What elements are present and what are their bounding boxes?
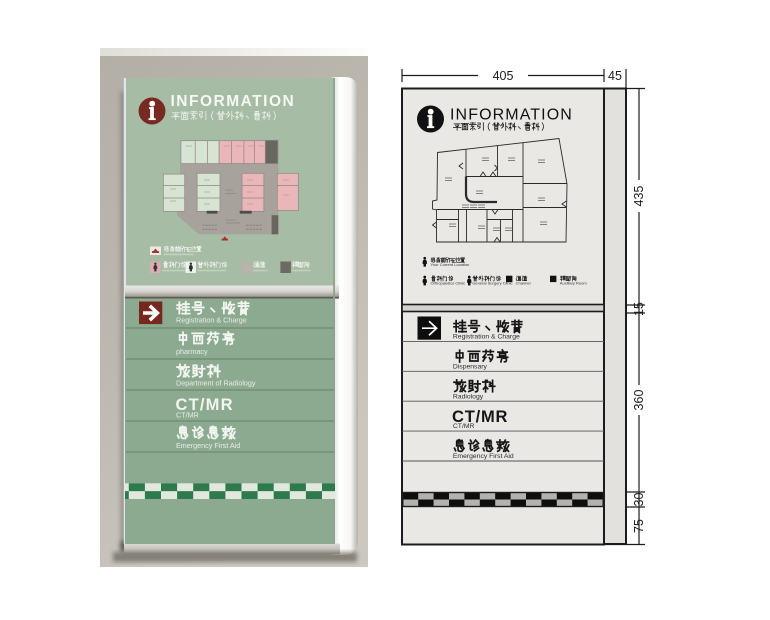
svg-text:435: 435	[632, 186, 646, 207]
svg-text:INFORMATION: INFORMATION	[450, 107, 573, 124]
svg-text:75: 75	[632, 519, 646, 533]
svg-text:CT/MR: CT/MR	[453, 423, 475, 430]
svg-text:Emergency First Aid: Emergency First Aid	[453, 453, 514, 460]
svg-text:Orthopaedics Clinic: Orthopaedics Clinic	[431, 281, 466, 286]
svg-text:Registration & Charge: Registration & Charge	[453, 334, 520, 341]
svg-text:Department of Radiology: Department of Radiology	[176, 379, 256, 388]
svg-text:Emergency First Aid: Emergency First Aid	[176, 441, 240, 450]
svg-text:Auxiliary Room: Auxiliary Room	[560, 281, 588, 286]
svg-text:Radiology: Radiology	[453, 393, 484, 400]
svg-text:CT/MR: CT/MR	[176, 411, 199, 420]
svg-text:405: 405	[493, 69, 514, 83]
svg-text:INFORMATION: INFORMATION	[171, 93, 296, 110]
svg-text:30: 30	[632, 493, 646, 507]
svg-text:Channel: Channel	[516, 281, 531, 286]
svg-text:Dispensary: Dispensary	[453, 363, 488, 370]
svg-text:Registration & Charge: Registration & Charge	[176, 315, 247, 324]
svg-text:45: 45	[608, 69, 622, 83]
svg-text:360: 360	[632, 390, 646, 411]
svg-text:pharmacy: pharmacy	[176, 347, 208, 356]
svg-text:15: 15	[632, 302, 646, 316]
svg-text:Your Current Location: Your Current Location	[431, 262, 470, 267]
